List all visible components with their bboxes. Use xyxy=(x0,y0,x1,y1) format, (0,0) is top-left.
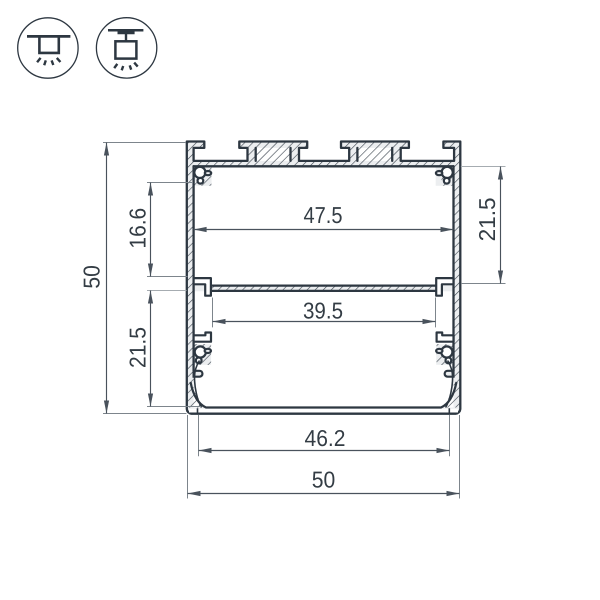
svg-text:39.5: 39.5 xyxy=(303,298,343,324)
svg-text:16.6: 16.6 xyxy=(124,208,150,249)
svg-text:21.5: 21.5 xyxy=(474,197,500,241)
svg-text:46.2: 46.2 xyxy=(305,425,346,451)
svg-text:47.5: 47.5 xyxy=(304,202,343,228)
svg-text:21.5: 21.5 xyxy=(124,327,150,368)
svg-text:50: 50 xyxy=(312,467,336,493)
svg-text:50: 50 xyxy=(79,265,105,289)
